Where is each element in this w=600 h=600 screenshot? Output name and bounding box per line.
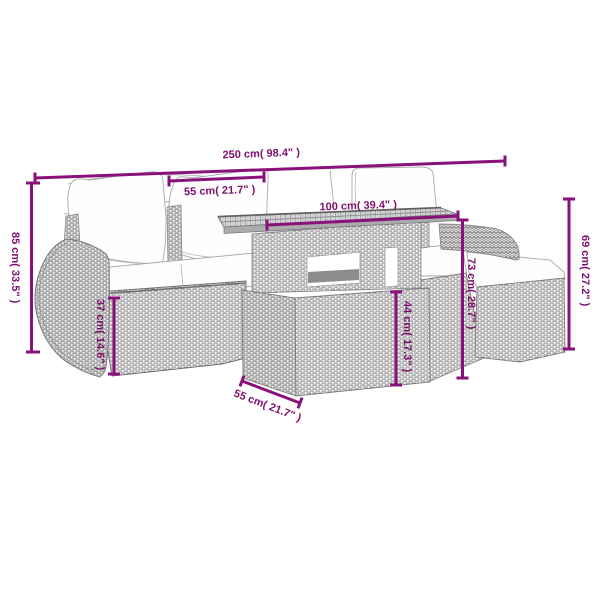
svg-text:250 cm( 98.4" ): 250 cm( 98.4" ) (222, 147, 300, 162)
svg-text:44 cm( 17.3" ): 44 cm( 17.3" ) (401, 301, 413, 373)
svg-text:37 cm( 14.6" ): 37 cm( 14.6" ) (94, 299, 106, 371)
svg-text:69 cm( 27.2" ): 69 cm( 27.2" ) (579, 235, 591, 307)
svg-text:85 cm( 33.5" ): 85 cm( 33.5" ) (9, 232, 21, 304)
svg-text:73 cm( 28.7" ): 73 cm( 28.7" ) (465, 258, 477, 330)
svg-text:55 cm( 21.7" ): 55 cm( 21.7" ) (184, 184, 256, 198)
